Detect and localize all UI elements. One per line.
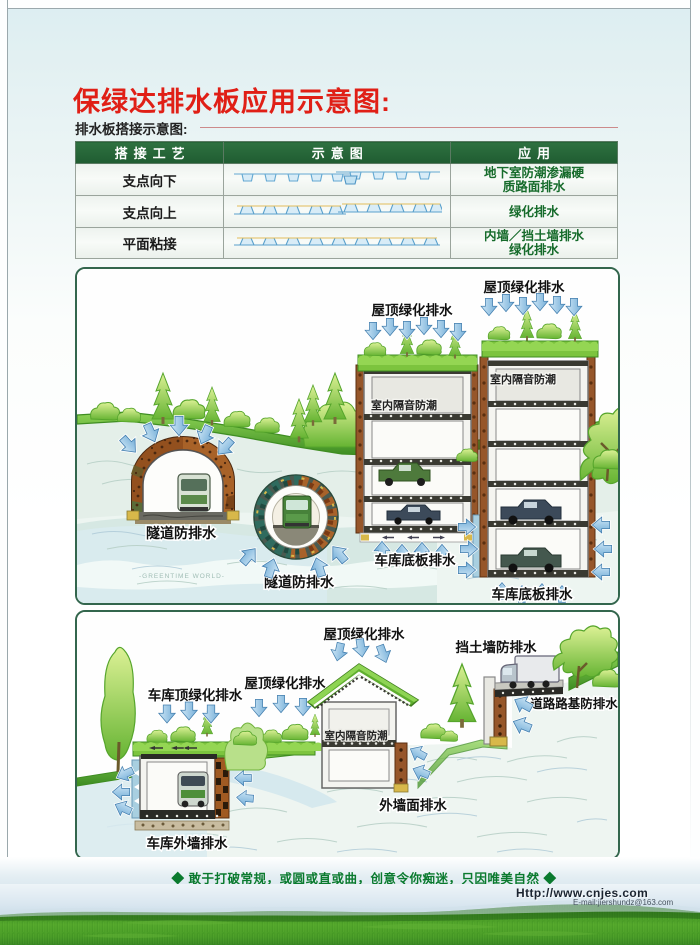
svg-text:车库顶绿化排水: 车库顶绿化排水	[148, 687, 243, 703]
svg-text:室内隔音防潮: 室内隔音防潮	[490, 372, 556, 386]
svg-text:屋顶绿化排水: 屋顶绿化排水	[484, 279, 565, 295]
svg-text:车库底板排水: 车库底板排水	[492, 586, 573, 602]
svg-text:屋顶绿化排水: 屋顶绿化排水	[245, 675, 326, 691]
svg-text:屋顶绿化排水: 屋顶绿化排水	[372, 302, 453, 318]
svg-text:隧道防排水: 隧道防排水	[146, 525, 217, 541]
svg-text:外墙面排水: 外墙面排水	[379, 797, 447, 813]
svg-text:挡土墙防排水: 挡土墙防排水	[456, 639, 537, 655]
svg-text:室内隔音防潮: 室内隔音防潮	[325, 729, 388, 742]
svg-text:车库外墙排水: 车库外墙排水	[147, 835, 228, 851]
svg-text:-GREENTIME WORLD-: -GREENTIME WORLD-	[139, 573, 225, 580]
svg-text:道路路基防排水: 道路路基防排水	[530, 696, 618, 711]
svg-text:室内隔音防潮: 室内隔音防潮	[371, 398, 437, 412]
svg-text:车库底板排水: 车库底板排水	[375, 552, 456, 568]
